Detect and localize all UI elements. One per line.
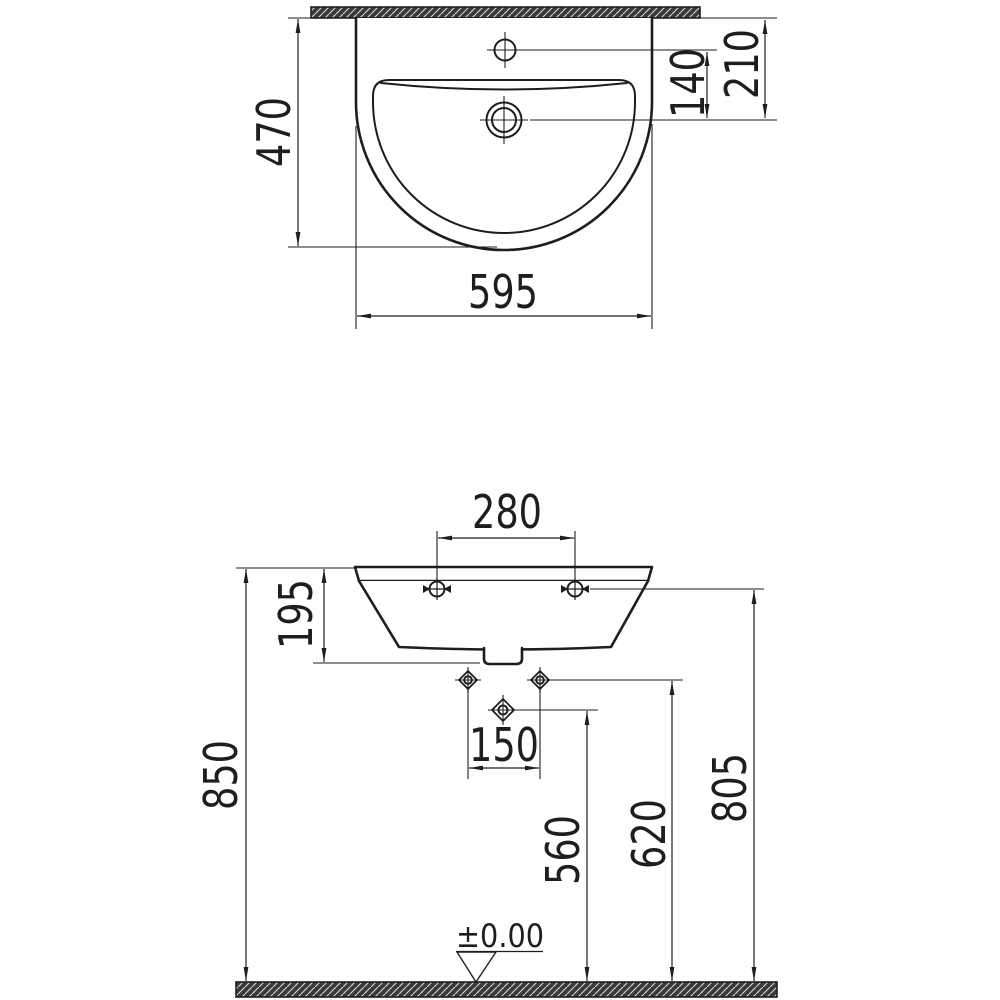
dimension-label: 280	[472, 485, 542, 539]
floor-level-label: ±0.00	[456, 917, 544, 955]
floor-level-marker: ±0.00	[456, 917, 544, 982]
basin-body-front	[359, 581, 648, 650]
dimension-fixing-hole-height: 805	[590, 589, 764, 981]
wall-section-hatch	[311, 7, 700, 18]
front-view: 280 195 850 150 560	[194, 485, 777, 997]
dimension-label: 595	[468, 265, 538, 319]
dimension-label: 620	[622, 799, 676, 869]
dimension-label: 210	[715, 29, 769, 99]
floor-section-hatch	[236, 982, 777, 997]
dimension-label: 150	[469, 718, 539, 772]
washbasin-technical-drawing: 470 595 140 210	[0, 0, 1000, 1000]
top-view: 470 595 140 210	[247, 7, 777, 329]
dimension-label: 560	[536, 815, 590, 885]
dimension-label: 850	[194, 740, 248, 810]
dimension-label: 805	[703, 753, 757, 823]
dimension-rim-height: 850	[194, 569, 248, 981]
dimension-label: 140	[661, 48, 715, 118]
technical-drawing-page: 470 595 140 210	[0, 0, 1000, 1000]
dimension-label: 195	[269, 579, 323, 649]
dimension-label: 470	[247, 97, 301, 167]
basin-rim-front	[355, 567, 652, 581]
waste-outlet-box	[484, 648, 522, 664]
level-triangle-icon	[457, 952, 496, 982]
